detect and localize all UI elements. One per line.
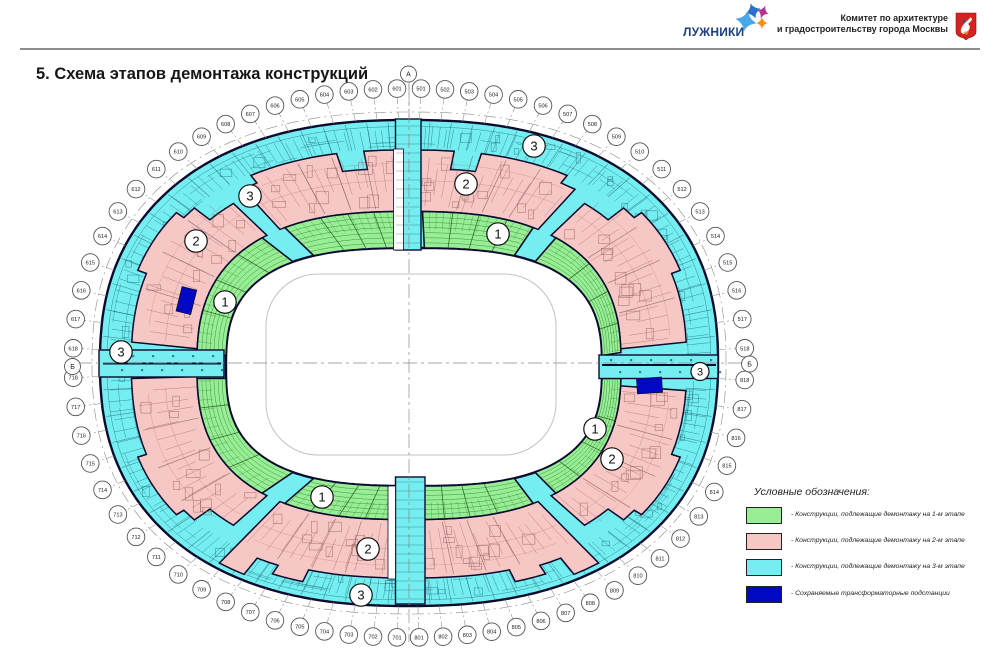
svg-text:804: 804 bbox=[487, 630, 496, 636]
svg-text:815: 815 bbox=[722, 464, 731, 470]
svg-text:709: 709 bbox=[197, 587, 206, 593]
svg-text:617: 617 bbox=[71, 317, 80, 323]
svg-text:512: 512 bbox=[677, 187, 686, 193]
svg-text:612: 612 bbox=[131, 187, 140, 193]
svg-text:613: 613 bbox=[113, 210, 122, 216]
svg-text:807: 807 bbox=[561, 611, 570, 617]
svg-text:606: 606 bbox=[270, 104, 279, 110]
svg-text:812: 812 bbox=[676, 537, 685, 543]
svg-text:516: 516 bbox=[732, 288, 741, 294]
svg-text:615: 615 bbox=[86, 261, 95, 267]
svg-text:616: 616 bbox=[77, 288, 86, 294]
svg-text:813: 813 bbox=[694, 514, 703, 520]
svg-text:518: 518 bbox=[740, 346, 749, 352]
svg-text:614: 614 bbox=[98, 234, 107, 240]
svg-text:504: 504 bbox=[489, 93, 498, 99]
svg-text:609: 609 bbox=[197, 135, 206, 141]
svg-text:718: 718 bbox=[69, 376, 78, 382]
svg-text:618: 618 bbox=[69, 346, 78, 352]
svg-text:706: 706 bbox=[270, 618, 279, 624]
svg-text:3: 3 bbox=[246, 189, 253, 204]
svg-text:601: 601 bbox=[392, 87, 401, 93]
svg-text:701: 701 bbox=[392, 635, 401, 641]
svg-text:1: 1 bbox=[591, 422, 598, 437]
svg-text:810: 810 bbox=[633, 574, 642, 580]
svg-text:508: 508 bbox=[588, 122, 597, 128]
svg-text:605: 605 bbox=[295, 97, 304, 103]
svg-text:607: 607 bbox=[246, 112, 255, 118]
svg-text:502: 502 bbox=[440, 87, 449, 93]
svg-text:808: 808 bbox=[586, 601, 595, 607]
svg-text:806: 806 bbox=[536, 619, 545, 625]
svg-text:818: 818 bbox=[740, 378, 749, 384]
svg-text:802: 802 bbox=[438, 635, 447, 641]
svg-text:513: 513 bbox=[695, 210, 704, 216]
svg-text:608: 608 bbox=[221, 122, 230, 128]
svg-text:2: 2 bbox=[364, 542, 371, 557]
svg-text:604: 604 bbox=[320, 93, 329, 99]
svg-text:514: 514 bbox=[711, 234, 720, 240]
svg-text:712: 712 bbox=[131, 535, 140, 541]
svg-text:710: 710 bbox=[174, 572, 183, 578]
svg-text:705: 705 bbox=[295, 625, 304, 631]
svg-text:816: 816 bbox=[731, 436, 740, 442]
svg-text:801: 801 bbox=[414, 635, 423, 641]
svg-text:1: 1 bbox=[221, 295, 228, 310]
svg-text:714: 714 bbox=[98, 488, 107, 494]
svg-text:2: 2 bbox=[608, 452, 615, 467]
svg-text:3: 3 bbox=[357, 588, 364, 603]
svg-text:715: 715 bbox=[86, 462, 95, 468]
svg-text:711: 711 bbox=[152, 555, 161, 561]
svg-text:503: 503 bbox=[465, 89, 474, 95]
svg-text:811: 811 bbox=[656, 556, 665, 562]
svg-text:509: 509 bbox=[612, 135, 621, 141]
svg-text:702: 702 bbox=[368, 635, 377, 641]
svg-text:507: 507 bbox=[563, 112, 572, 118]
svg-text:3: 3 bbox=[697, 366, 703, 378]
svg-text:2: 2 bbox=[462, 177, 469, 192]
svg-text:511: 511 bbox=[657, 167, 666, 173]
svg-text:510: 510 bbox=[635, 150, 644, 156]
svg-text:515: 515 bbox=[723, 261, 732, 267]
svg-text:713: 713 bbox=[113, 513, 122, 519]
svg-text:708: 708 bbox=[221, 600, 230, 606]
svg-text:505: 505 bbox=[514, 97, 523, 103]
svg-text:805: 805 bbox=[512, 625, 521, 631]
svg-text:803: 803 bbox=[463, 633, 472, 639]
svg-text:А: А bbox=[406, 72, 411, 79]
svg-text:610: 610 bbox=[174, 150, 183, 156]
svg-text:809: 809 bbox=[610, 588, 619, 594]
svg-text:814: 814 bbox=[710, 490, 719, 496]
svg-text:Б: Б bbox=[70, 364, 75, 371]
svg-text:717: 717 bbox=[71, 405, 80, 411]
svg-text:603: 603 bbox=[344, 89, 353, 95]
svg-text:716: 716 bbox=[77, 434, 86, 440]
svg-text:501: 501 bbox=[416, 87, 425, 93]
svg-text:611: 611 bbox=[152, 167, 161, 173]
svg-text:704: 704 bbox=[320, 629, 329, 635]
svg-text:1: 1 bbox=[494, 227, 501, 242]
svg-text:703: 703 bbox=[344, 633, 353, 639]
svg-text:506: 506 bbox=[538, 104, 547, 110]
svg-text:3: 3 bbox=[117, 345, 124, 360]
svg-text:707: 707 bbox=[246, 610, 255, 616]
svg-text:2: 2 bbox=[192, 234, 199, 249]
svg-text:602: 602 bbox=[368, 87, 377, 93]
svg-text:517: 517 bbox=[738, 317, 747, 323]
svg-text:Б: Б bbox=[747, 362, 752, 369]
svg-text:3: 3 bbox=[530, 139, 537, 154]
svg-text:817: 817 bbox=[737, 407, 746, 413]
svg-text:1: 1 bbox=[318, 490, 325, 505]
